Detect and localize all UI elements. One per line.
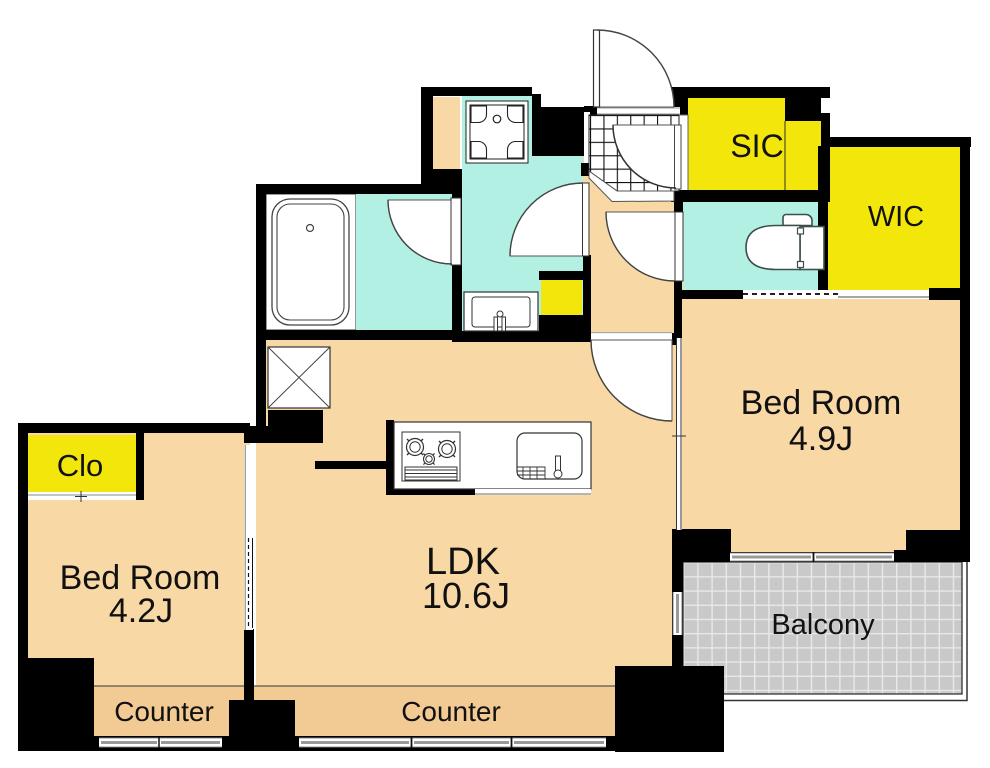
svg-text:10.6J: 10.6J — [422, 575, 510, 616]
svg-text:4.9J: 4.9J — [789, 420, 853, 458]
svg-text:SIC: SIC — [730, 128, 783, 164]
svg-text:Bed Room: Bed Room — [741, 384, 902, 422]
svg-text:4.2J: 4.2J — [109, 592, 173, 630]
svg-text:Counter: Counter — [114, 696, 214, 727]
svg-text:Balcony: Balcony — [771, 609, 875, 641]
svg-text:Clo: Clo — [57, 448, 104, 483]
svg-text:WIC: WIC — [868, 201, 924, 233]
svg-text:Counter: Counter — [401, 696, 501, 727]
